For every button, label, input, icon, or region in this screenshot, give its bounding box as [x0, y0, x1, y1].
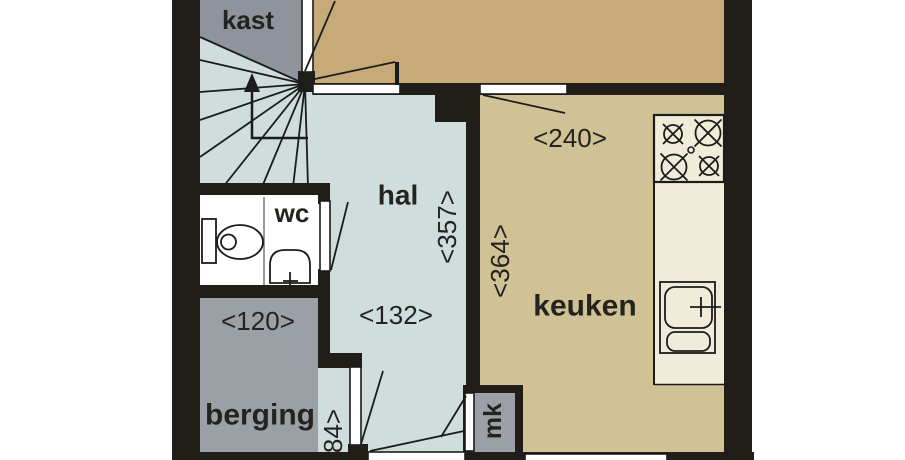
floorplan: kast hal wc keuken berging mk <240> <357…	[0, 0, 905, 460]
wall-notch	[435, 83, 480, 122]
door-mk	[465, 393, 474, 451]
room-label-mk: mk	[479, 403, 507, 439]
room-top	[313, 0, 724, 85]
stove-icon	[654, 115, 724, 182]
dim-room-top-width: <240>	[533, 123, 607, 153]
wall-left	[172, 0, 200, 460]
dim-hal-depth: <357>	[432, 190, 462, 264]
wall-berging-right	[318, 298, 330, 355]
wall-wc-top	[200, 183, 330, 195]
window-keuken-south	[525, 454, 667, 460]
dim-entry-width: 84>	[318, 409, 348, 453]
wall-berging-step	[318, 353, 362, 368]
door-wc	[320, 201, 330, 271]
door-front	[368, 452, 465, 460]
door-top-room	[313, 84, 400, 94]
wall-door-post	[348, 444, 368, 460]
dim-hal-width: <132>	[359, 300, 433, 330]
room-label-keuken: keuken	[533, 290, 636, 323]
door-kast	[302, 0, 313, 72]
wall-right	[724, 0, 752, 460]
room-label-kast: kast	[222, 5, 274, 35]
door-keuken	[480, 84, 567, 94]
wall-hal-keuken	[466, 118, 480, 393]
dim-berging-width: <120>	[221, 306, 295, 336]
room-label-hal: hal	[378, 180, 418, 211]
door-berging	[350, 367, 361, 445]
room-label-berging: berging	[205, 399, 315, 432]
floorplan-drawing: kast hal wc keuken berging mk <240> <357…	[0, 0, 905, 460]
wall-wc-bottom	[200, 285, 330, 298]
dim-keuken-depth: <364>	[485, 224, 515, 298]
room-label-wc: wc	[274, 198, 310, 228]
